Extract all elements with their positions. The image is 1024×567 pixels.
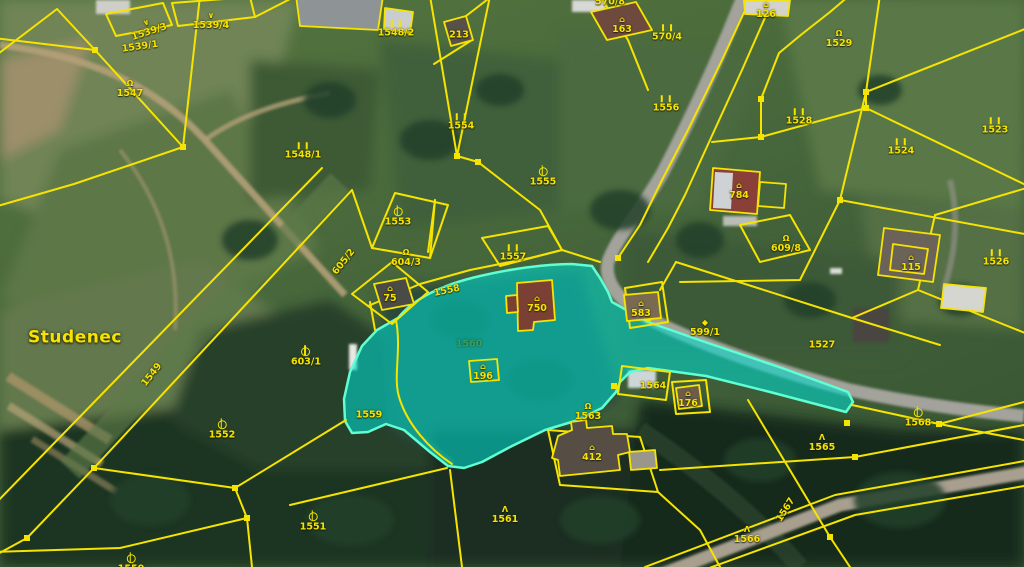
building-126: [744, 0, 790, 16]
building-176: [676, 385, 702, 409]
cadastral-map[interactable]: 1539/1∨1539/3∨1539/4Ω15471548/11548/2213…: [0, 0, 1024, 567]
building-412: [552, 420, 657, 476]
building-213: [444, 16, 473, 46]
building-163: [591, 2, 652, 40]
building-115: [878, 228, 940, 282]
parcel-overlay: [0, 0, 1024, 567]
building-784: [710, 168, 786, 214]
building-583: [624, 292, 661, 321]
building-75: [374, 278, 414, 310]
